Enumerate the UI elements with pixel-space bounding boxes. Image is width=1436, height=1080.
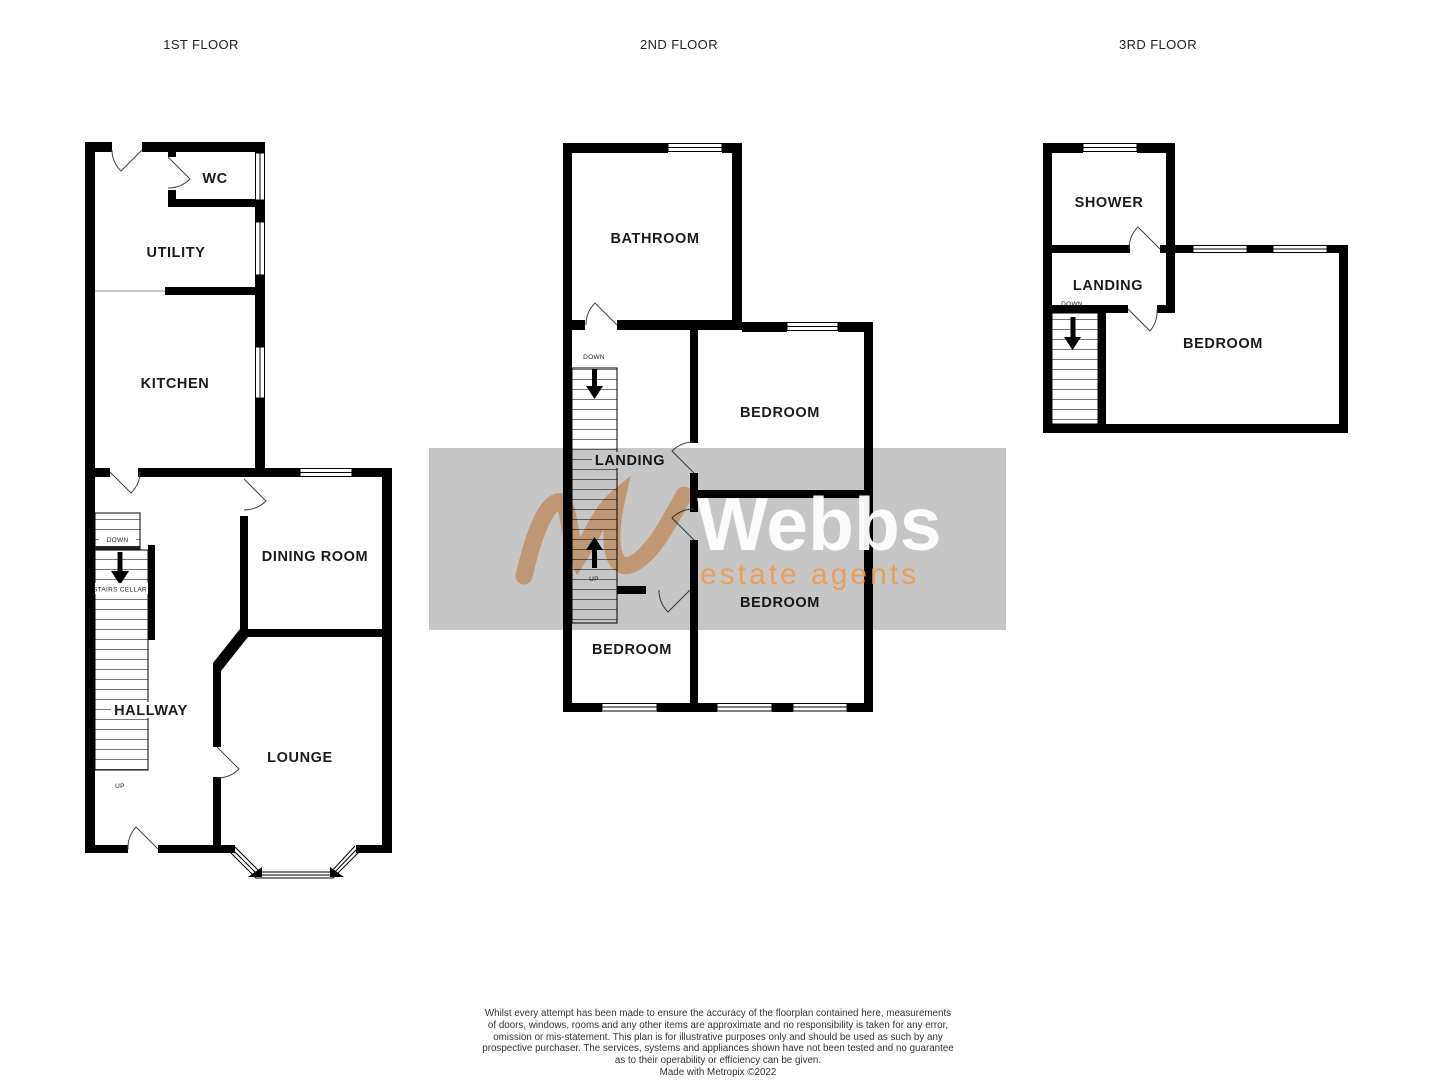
watermark-tagline: estate agents	[700, 558, 919, 591]
up-label: UP	[115, 783, 125, 790]
floorplan-page: 1ST FLOOR 2ND FLOOR 3RD FLOOR DOWN STAIR…	[0, 0, 1436, 1080]
floor3-title: 3RD FLOOR	[1119, 37, 1197, 52]
room-label-bedroom-left: BEDROOM	[592, 642, 672, 658]
disclaimer-line: of doors, windows, rooms and any other i…	[358, 1020, 1078, 1032]
third-floor-stairs: DOWN	[1052, 301, 1098, 424]
bay-window	[231, 846, 359, 878]
disclaimer-line: Whilst every attempt has been made to en…	[358, 1008, 1078, 1020]
disclaimer-credit: Made with Metropix ©2022	[358, 1067, 1078, 1079]
floorplan-svg: 1ST FLOOR 2ND FLOOR 3RD FLOOR DOWN STAIR…	[0, 0, 1436, 1080]
cellar-down-label: DOWN	[107, 537, 129, 544]
room-label-shower: SHOWER	[1075, 195, 1144, 211]
disclaimer-line: as to their operability or efficiency ca…	[358, 1055, 1078, 1067]
down-arrow	[1071, 317, 1076, 337]
disclaimer-line: omission or mis-statement. This plan is …	[358, 1032, 1078, 1044]
room-label-bedroom-top: BEDROOM	[740, 405, 820, 421]
room-label-lounge: LOUNGE	[267, 750, 333, 766]
room-label-bedroom: BEDROOM	[1183, 336, 1263, 352]
room-label-bathroom: BATHROOM	[610, 231, 699, 247]
watermark: Webbs estate agents	[429, 448, 1006, 630]
down-arrow	[592, 369, 597, 386]
disclaimer-line: prospective purchaser. The services, sys…	[358, 1043, 1078, 1055]
room-label-hallway: HALLWAY	[114, 703, 188, 719]
third-floor-plan: DOWN	[1043, 143, 1348, 433]
first-floor-windows	[256, 153, 353, 477]
room-label-utility: UTILITY	[147, 245, 206, 261]
floor2-title: 2ND FLOOR	[640, 37, 718, 52]
room-label-landing: LANDING	[1073, 278, 1143, 294]
room-label-dining-room: DINING ROOM	[262, 549, 369, 565]
room-label-wc: WC	[202, 171, 227, 187]
disclaimer: Whilst every attempt has been made to en…	[358, 1008, 1078, 1079]
down-arrow	[118, 552, 123, 572]
down-label: DOWN	[583, 354, 605, 361]
first-floor-stairs: DOWN STAIRS CELLAR UP	[92, 513, 155, 790]
first-floor-plan: DOWN STAIRS CELLAR UP	[85, 142, 392, 878]
floor1-title: 1ST FLOOR	[163, 37, 239, 52]
stairs-cellar-label: STAIRS CELLAR	[93, 587, 147, 594]
room-label-kitchen: KITCHEN	[141, 376, 210, 392]
watermark-brand: Webbs	[697, 482, 941, 566]
